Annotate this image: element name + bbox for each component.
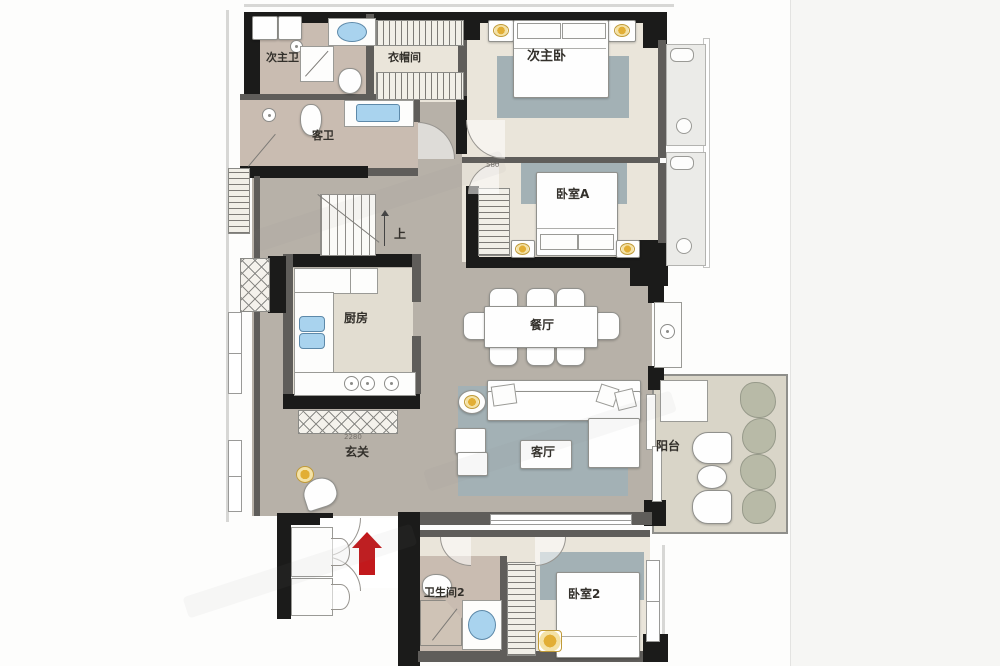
stove-burner-1 xyxy=(344,376,359,391)
room-label-closet: 衣帽间 xyxy=(388,52,421,63)
guestbath-light xyxy=(262,108,276,122)
window-bedroom2-right xyxy=(646,560,660,642)
entry-shoe-cabinet xyxy=(298,410,398,434)
balcony-plant-2 xyxy=(742,418,776,454)
master2-sink xyxy=(337,22,367,42)
wall-dining-right-1 xyxy=(648,278,664,303)
room-label-guest-bath: 客卫 xyxy=(312,130,334,141)
dim-entry-width: 2280 xyxy=(344,434,362,441)
bedroom-a-pillow-2 xyxy=(578,234,614,250)
window-living-bottom xyxy=(490,514,632,525)
stairs-arrow-line xyxy=(384,214,385,246)
bedroom2-bed xyxy=(556,572,640,658)
entry-closet-2 xyxy=(291,578,333,616)
room-label-master2-bedroom: 次主卧 xyxy=(527,50,566,63)
master2-lamp-right xyxy=(614,24,630,37)
side-balcony-left xyxy=(228,168,250,234)
dryer xyxy=(278,16,302,40)
closet-door-fan-2 xyxy=(331,584,350,610)
ac-unit-1 xyxy=(670,48,694,62)
closet-wardrobe-bottom xyxy=(376,72,464,100)
closet-wardrobe-top xyxy=(376,20,464,46)
wall-bedroom-a-bottom xyxy=(466,257,648,268)
room-label-dining: 餐厅 xyxy=(530,319,554,331)
kitchen-fridge xyxy=(350,268,378,294)
master2-pillow-1 xyxy=(517,23,561,39)
ac-unit-2 xyxy=(670,156,694,170)
bath2-sink xyxy=(468,610,496,640)
balcony-sliding-door-2 xyxy=(652,446,662,502)
wall-bottomwing-top xyxy=(420,530,650,537)
ac-fan-2 xyxy=(676,238,692,254)
outline-top xyxy=(244,4,674,7)
bedroom2-stool xyxy=(538,630,562,652)
master2-pillow-2 xyxy=(562,23,606,39)
wall-corridor-left xyxy=(254,176,260,516)
room-label-master2-bath: 次主卫 xyxy=(266,52,299,63)
bedroom-a-lamp-left xyxy=(515,243,530,255)
kitchen-sink-basin-1 xyxy=(299,316,325,332)
balcony-chair-2 xyxy=(692,490,732,524)
bedroom-a-pillow-1 xyxy=(540,234,578,250)
floor-plan-canvas: 次主卫 客卫 衣帽间 次主卧 卧室A 餐厅 厨房 上 玄关 客厅 阳台 卫生间2… xyxy=(0,0,1000,666)
wall-bedroom-a-right xyxy=(658,163,666,243)
room-label-bedroom-a: 卧室A xyxy=(556,188,589,200)
kitchen-sink-basin-2 xyxy=(299,333,325,349)
master2-toilet xyxy=(338,68,362,94)
room-label-bath2: 卫生间2 xyxy=(424,587,465,598)
room-label-kitchen: 厨房 xyxy=(344,312,368,324)
stove-burner-2 xyxy=(360,376,375,391)
room-label-entry: 玄关 xyxy=(345,446,369,458)
bedroom-a-wardrobe xyxy=(478,188,510,256)
dining-chair-right xyxy=(596,312,620,340)
wall-kitchen-bottom xyxy=(283,394,420,409)
wall-master2-right xyxy=(658,40,666,158)
balcony-table xyxy=(697,465,727,489)
stove-burner-3 xyxy=(384,376,399,391)
stairs-label-up: 上 xyxy=(394,228,406,240)
window-left-upper xyxy=(228,312,242,394)
living-floor-lamp xyxy=(464,395,480,409)
balcony-plant-3 xyxy=(740,454,776,490)
wall-kitchen-right-1 xyxy=(412,254,421,302)
ac-fan-1 xyxy=(676,118,692,134)
bedroom-a-sheet-line xyxy=(537,228,615,229)
master2-lamp-left xyxy=(493,24,509,37)
ottoman-1 xyxy=(455,428,486,454)
balcony-chair-1 xyxy=(692,432,732,464)
ac-unit-bay xyxy=(660,324,675,339)
guestbath-sink xyxy=(356,104,400,122)
wall-shaft-right xyxy=(268,256,286,313)
room-label-balcony: 阳台 xyxy=(656,440,680,452)
bedroom-a-lamp-right xyxy=(620,243,635,255)
washer xyxy=(252,16,278,40)
duct-shaft xyxy=(240,258,270,312)
window-left-lower xyxy=(228,440,242,512)
room-label-bedroom2: 卧室2 xyxy=(568,588,600,600)
wall-guestbath-bottom2 xyxy=(368,168,418,176)
sofa-cushion-1 xyxy=(491,383,518,406)
balcony-plant-1 xyxy=(740,382,776,418)
bedroom2-sheet-line xyxy=(557,636,637,637)
bedroom2-wardrobe xyxy=(507,562,536,656)
page-right-panel xyxy=(790,0,1000,666)
